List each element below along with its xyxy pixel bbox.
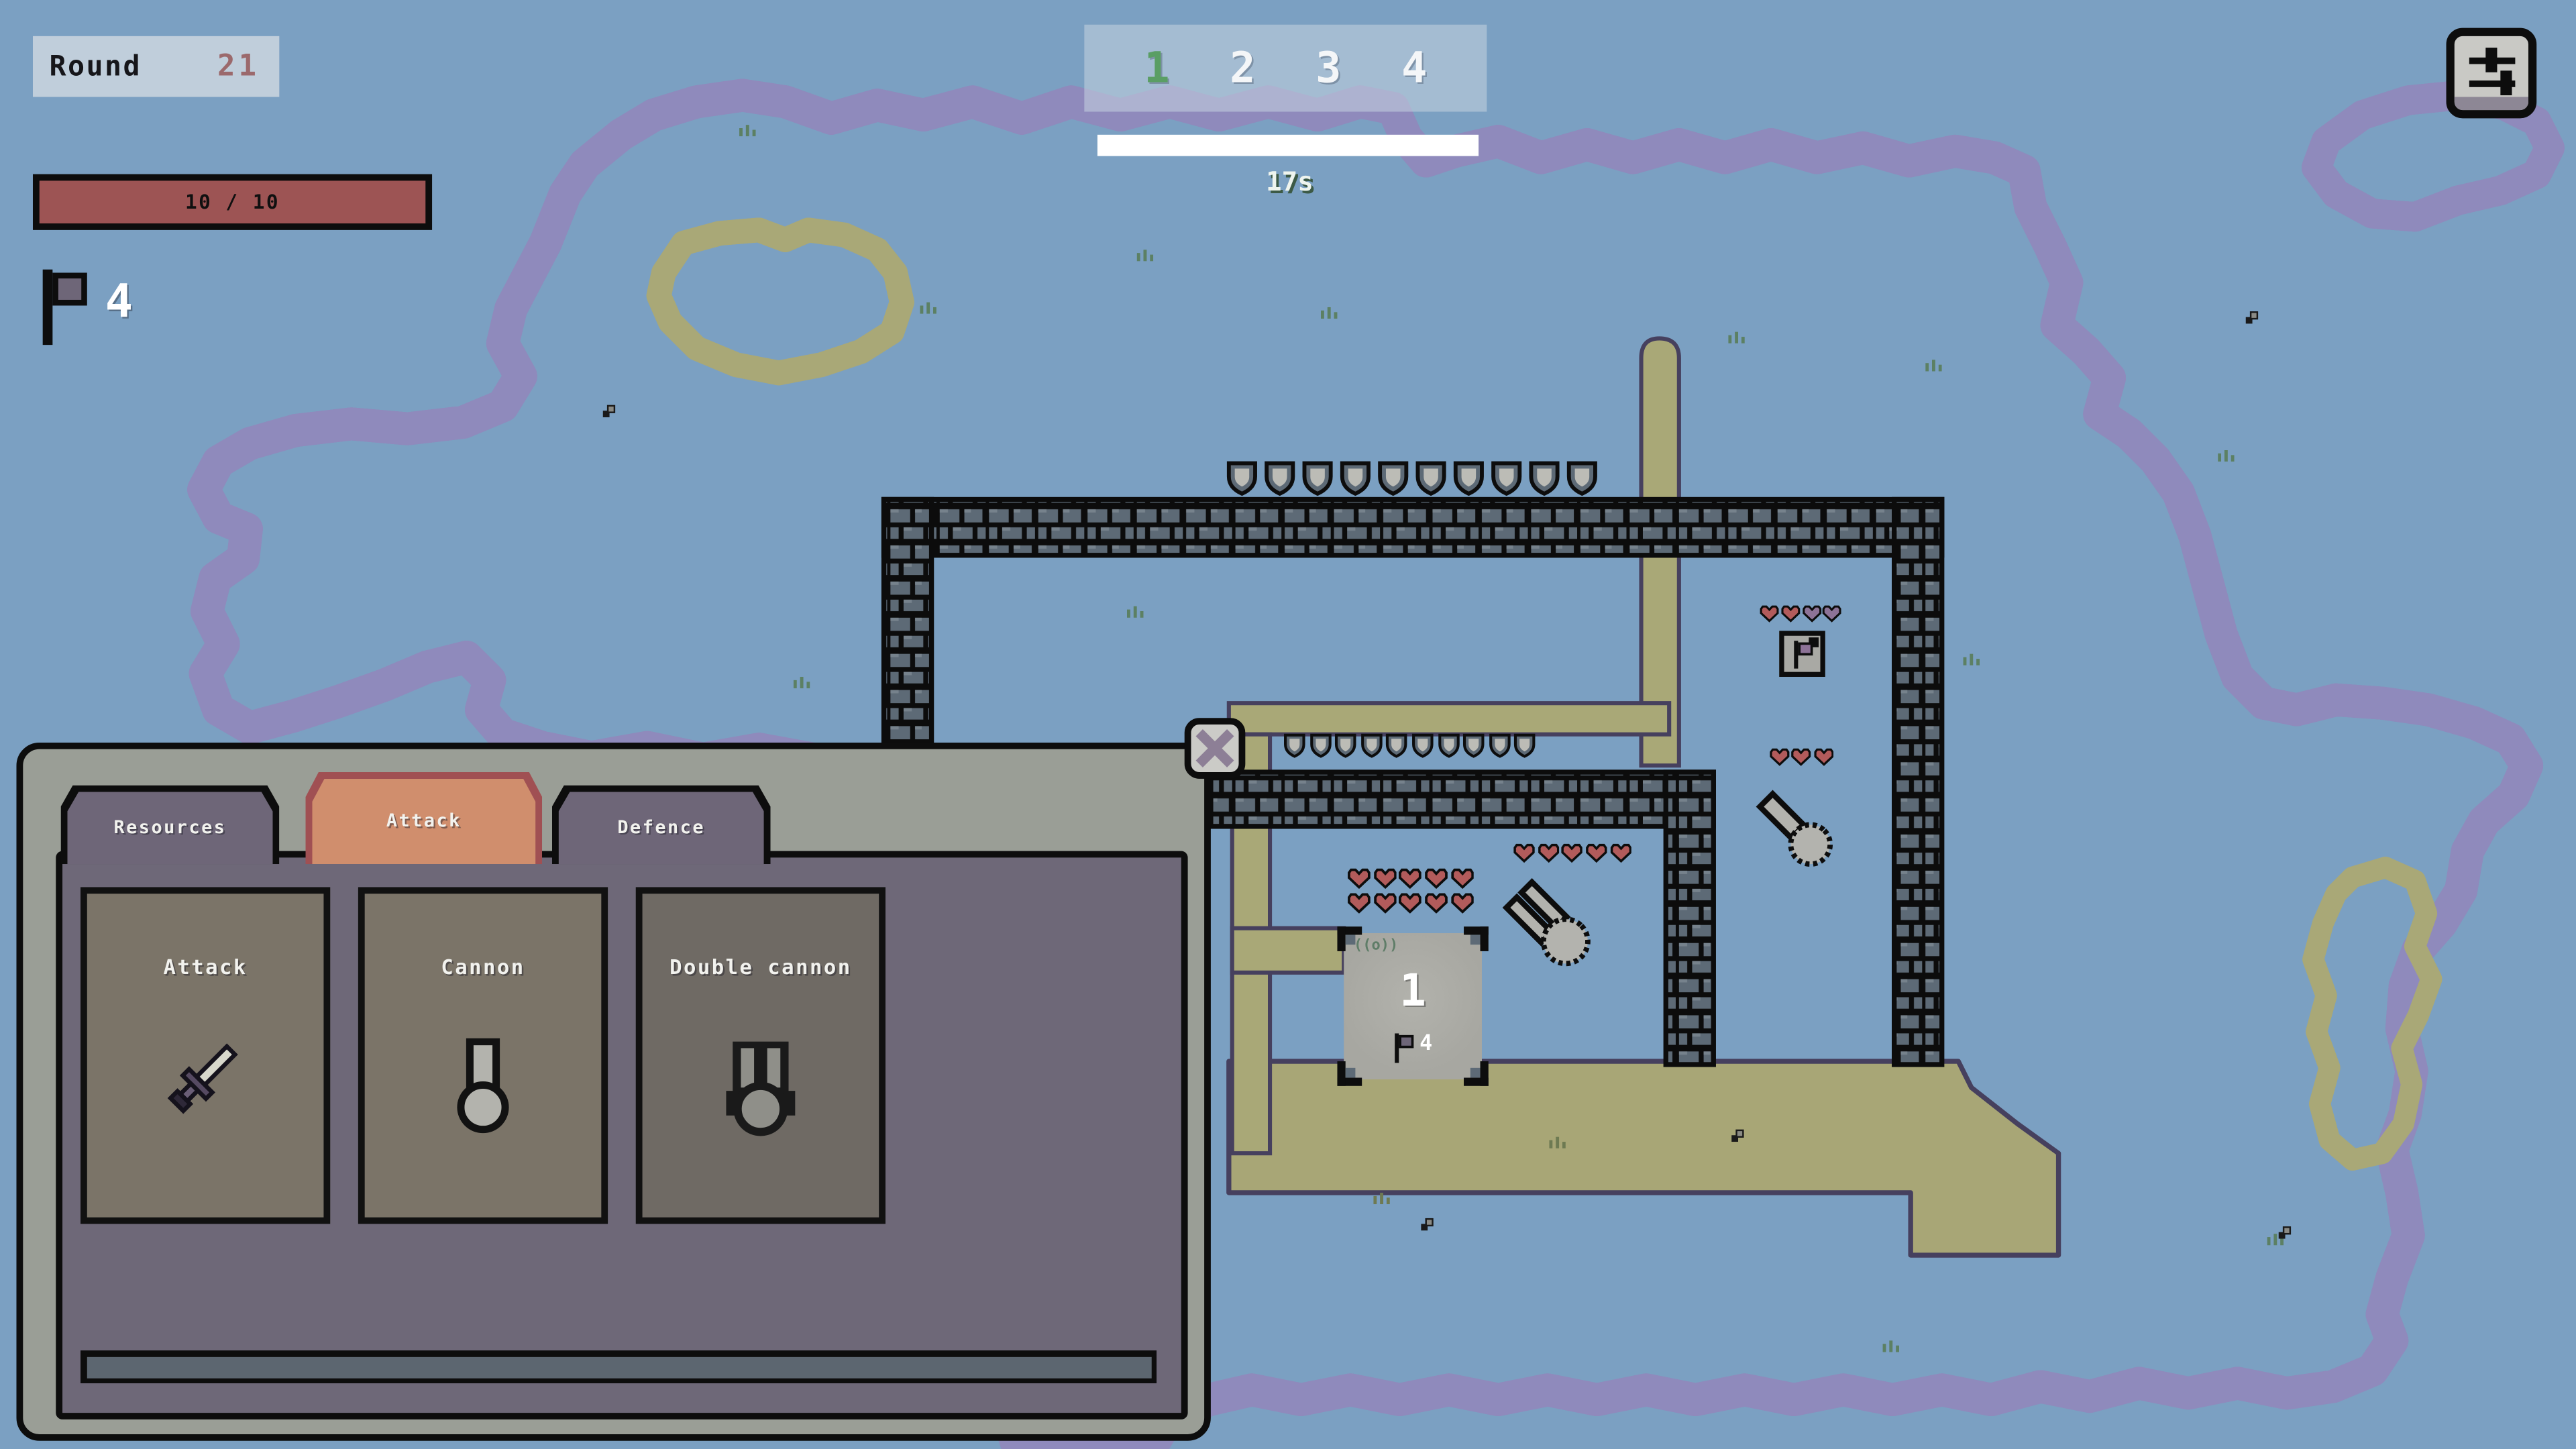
outpost-hearts <box>1760 604 1851 624</box>
wall-shields-top <box>1226 460 1603 496</box>
tab-defence-label: Defence <box>552 816 771 838</box>
settings-button[interactable] <box>2447 28 2537 119</box>
wave-number-1[interactable]: 1 <box>1144 44 1169 93</box>
wall-inner-vertical[interactable] <box>1666 772 1713 1065</box>
double-cannon-icon <box>643 1038 879 1137</box>
double-cannon-icon <box>1493 869 1618 994</box>
base-hearts <box>1347 867 1479 916</box>
gate-node[interactable] <box>1185 718 1246 779</box>
outpost-building[interactable] <box>1779 631 1825 677</box>
wall-shields-inner <box>1283 733 1540 758</box>
rock-decoration <box>2244 301 2259 332</box>
x-icon <box>1191 724 1239 772</box>
rock-decoration <box>2277 1216 2292 1247</box>
card-cannon[interactable]: Cannon <box>358 887 608 1224</box>
wave-progress-bar <box>1097 135 1479 156</box>
sword-icon <box>87 1038 324 1120</box>
wall-inner-horizontal[interactable] <box>1211 772 1713 826</box>
card-double-cannon-title: Double cannon <box>643 953 879 983</box>
outpost-flag-icon <box>1792 641 1814 669</box>
card-double-cannon[interactable]: Double cannon <box>636 887 885 1224</box>
button-shade <box>2455 97 2528 110</box>
rock-decoration <box>1419 1207 1434 1239</box>
cannon-hearts <box>1770 747 1842 767</box>
card-attack-title: Attack <box>87 953 324 983</box>
grass-tuft <box>739 112 755 144</box>
tab-defence[interactable]: Defence <box>552 786 771 865</box>
grass-tuft <box>920 289 936 321</box>
cannon-icon <box>365 1038 602 1134</box>
panel-progress-bar <box>80 1350 1157 1383</box>
health-text: 10 / 10 <box>185 191 280 213</box>
tab-attack[interactable]: Attack <box>306 772 543 864</box>
grass-tuft <box>1549 1124 1565 1155</box>
wave-number-3[interactable]: 3 <box>1316 44 1341 93</box>
flag-icon <box>40 270 89 345</box>
wall-left[interactable] <box>884 499 932 759</box>
wave-number-4[interactable]: 4 <box>1401 44 1427 93</box>
grass-tuft <box>1964 641 1980 672</box>
rock-decoration <box>601 394 616 426</box>
tab-resources[interactable]: Resources <box>61 786 280 865</box>
rock-decoration <box>1730 1119 1745 1150</box>
round-label: Round <box>49 50 142 83</box>
double-cannon-tower[interactable] <box>1493 869 1618 1001</box>
grass-tuft <box>1883 1328 1899 1359</box>
cannon-tower[interactable] <box>1745 775 1857 894</box>
cannon-icon <box>1745 775 1857 888</box>
base-health-bar: 10 / 10 <box>33 174 432 230</box>
player-base[interactable]: ((o)) 1 4 <box>1344 933 1482 1079</box>
grass-tuft <box>1321 294 1337 325</box>
grass-tuft <box>2218 437 2234 468</box>
base-number: 1 <box>1344 966 1482 1017</box>
flag-counter: 4 <box>40 270 133 345</box>
base-corner-symbol: ((o)) <box>1354 938 1398 954</box>
grass-tuft <box>1728 319 1744 350</box>
build-panel: Resources Attack Defence Attack <box>16 743 1210 1441</box>
wave-timer: 17s <box>1216 166 1363 197</box>
grass-tuft <box>1127 593 1143 625</box>
grass-tuft <box>1373 1179 1389 1211</box>
grass-tuft <box>1925 347 1941 378</box>
tab-resources-label: Resources <box>61 816 280 838</box>
panel-progress-fill <box>87 1356 1151 1378</box>
grass-tuft <box>794 663 810 695</box>
round-value: 21 <box>217 49 260 83</box>
path-to-base <box>1232 928 1344 973</box>
game-screen: ((o)) 1 4 Round 21 10 / 10 <box>0 0 2576 1449</box>
flag-icon <box>1393 1033 1415 1063</box>
double-cannon-hearts <box>1513 843 1645 865</box>
path-east <box>1229 703 1669 735</box>
flag-count: 4 <box>105 270 133 335</box>
wave-number-2[interactable]: 2 <box>1230 44 1255 93</box>
tab-attack-label: Attack <box>306 810 543 831</box>
card-cannon-title: Cannon <box>365 953 602 983</box>
base-corner-bracket <box>1337 1061 1362 1086</box>
wall-top[interactable] <box>884 499 1942 555</box>
grass-tuft <box>1137 237 1153 268</box>
base-corner-bracket <box>1464 926 1489 951</box>
base-corner-bracket <box>1464 1061 1489 1086</box>
health-fill: 10 / 10 <box>40 180 426 223</box>
card-attack[interactable]: Attack <box>80 887 330 1224</box>
base-flag-count: 4 <box>1419 1033 1432 1056</box>
wave-selector[interactable]: 1234 <box>1084 25 1487 112</box>
wall-right[interactable] <box>1894 499 1942 1064</box>
round-indicator: Round 21 <box>33 36 279 97</box>
